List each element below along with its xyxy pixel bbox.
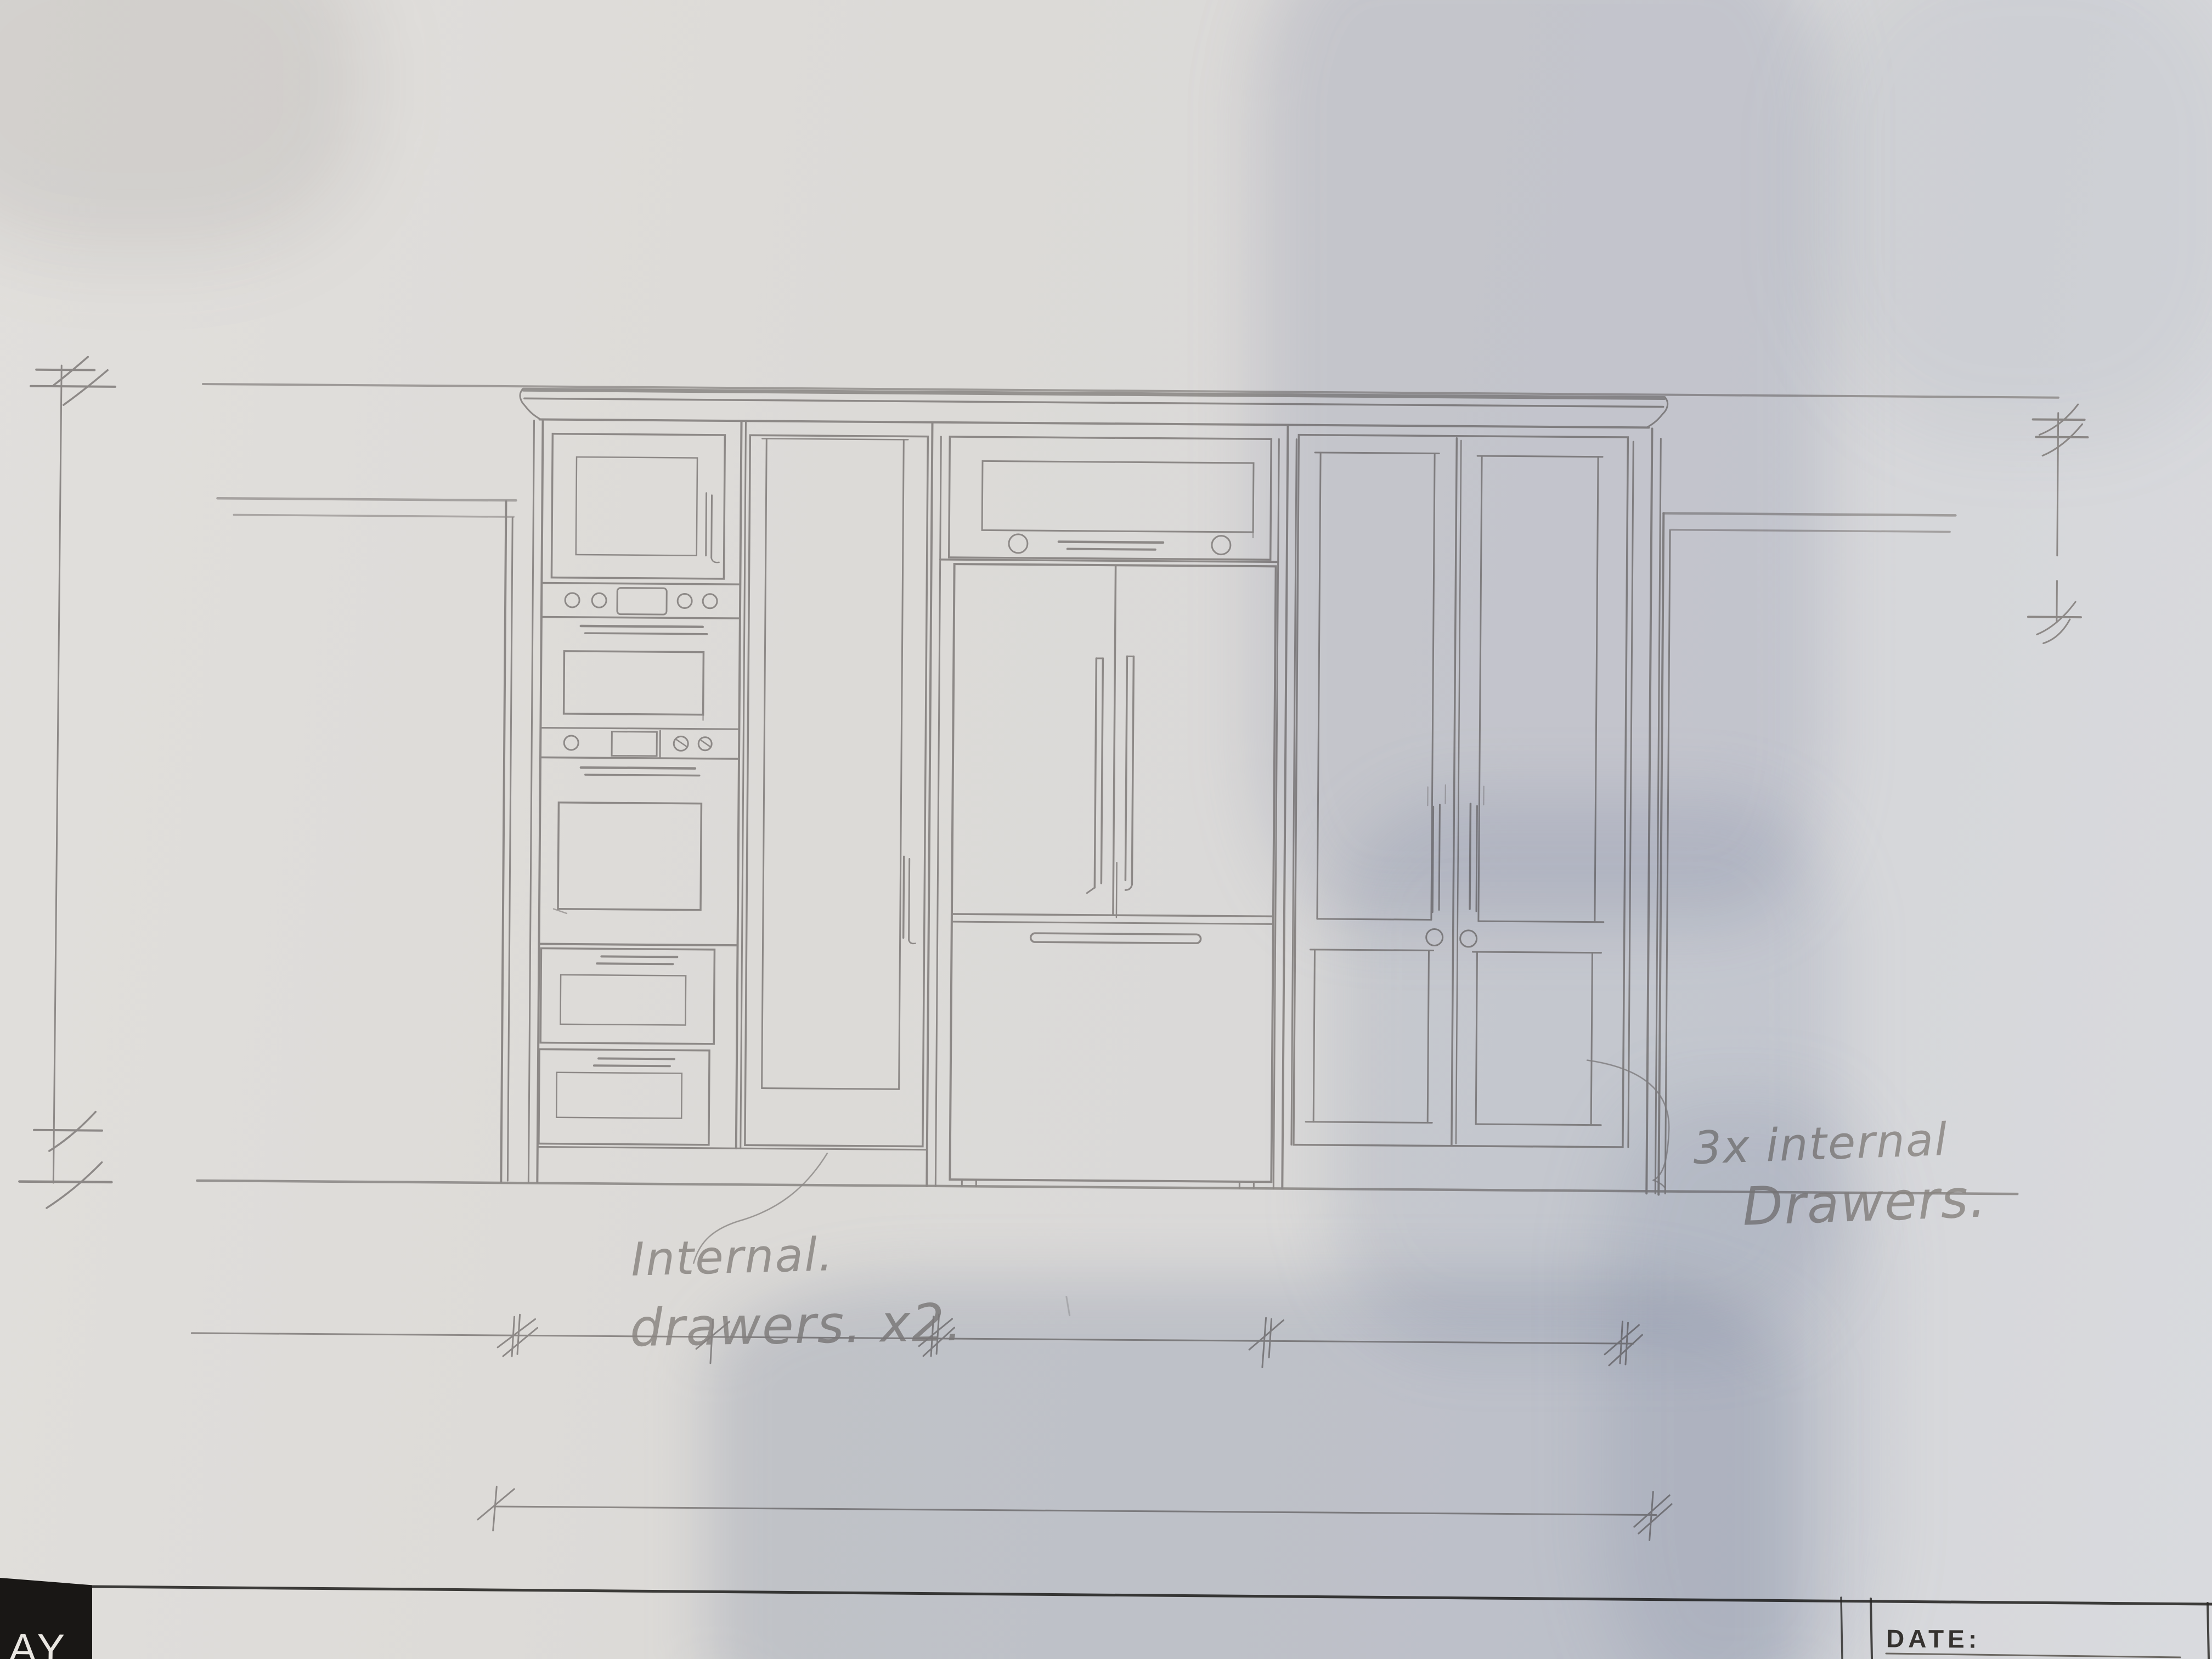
larder-cabinet	[1291, 435, 1633, 1147]
date-field-label: DATE:	[1886, 1623, 1980, 1654]
oven-cabinet	[538, 421, 933, 1150]
handwritten-note-internal-drawers-line1: Internal.	[630, 1227, 834, 1286]
photo-of-kitchen-elevation-sketch: Internal. drawers. x2. 3x internal Drawe…	[0, 0, 2212, 1659]
pantry-door-handle	[904, 856, 916, 944]
oven-control-panel-lower	[540, 728, 739, 759]
oven-upper	[564, 626, 707, 720]
handwritten-note-3x-internal-line1: 3x internal	[1692, 1114, 1949, 1175]
over-fridge-cupboard	[949, 437, 1272, 560]
logo-text: AY	[8, 1624, 68, 1659]
oven-control-panel-upper	[541, 583, 740, 619]
pencil-drawing	[17, 357, 2089, 1544]
oven-lower	[554, 768, 702, 915]
right-wall-doorway	[1658, 513, 1955, 1197]
dimension-row-overall	[478, 1483, 1672, 1541]
kitchen-elevation-sketch	[0, 0, 2212, 1659]
oven-top-cupboard-door	[551, 434, 725, 579]
crown-molding	[520, 390, 1668, 427]
fridge-cabinet	[927, 424, 1288, 1189]
pantry-cabinet	[745, 435, 928, 1146]
oven-cabinet-drawer-2	[539, 1049, 709, 1145]
fridge-french-doors	[950, 564, 1276, 1182]
freezer-drawer	[962, 933, 1255, 1188]
dimension-right-height	[2028, 404, 2088, 644]
handwritten-note-3x-internal-line2: Drawers.	[1741, 1167, 1988, 1237]
handwritten-note-internal-drawers-line2: drawers. x2.	[629, 1293, 963, 1359]
dimension-left-height	[19, 357, 117, 1209]
oven-cabinet-drawer-1	[540, 949, 714, 1044]
larder-lower-panels	[1306, 950, 1602, 1125]
left-wall-doorway	[212, 498, 516, 1182]
